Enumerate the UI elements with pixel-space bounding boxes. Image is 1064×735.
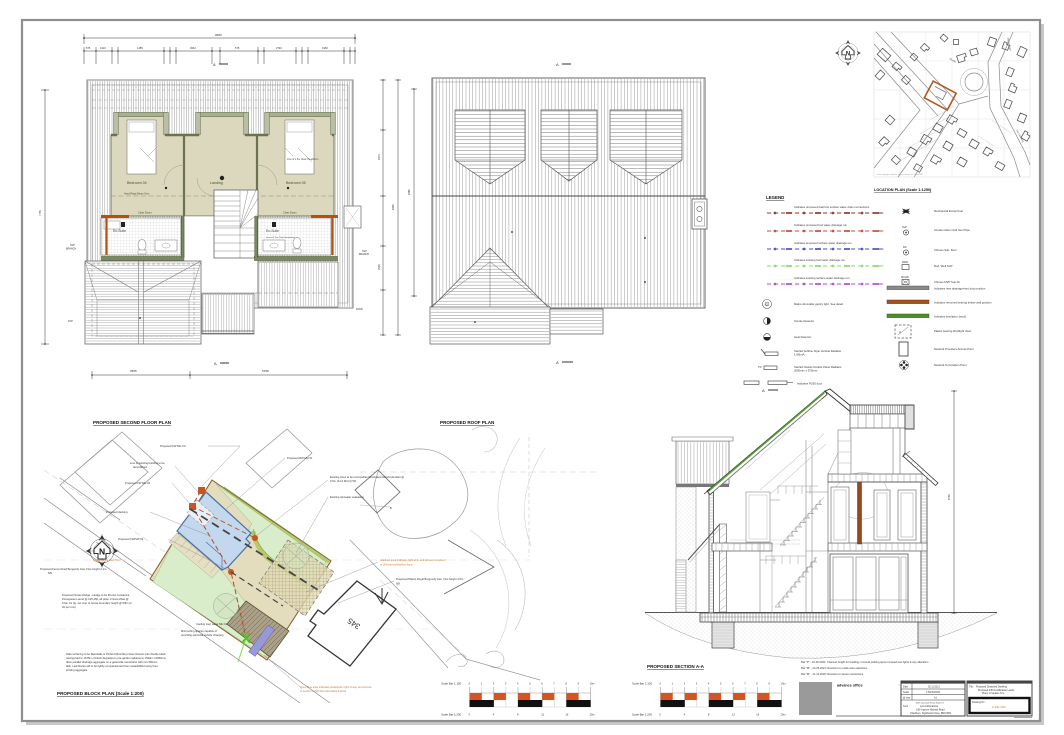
svg-text:of 2M thermal blanket flood: of 2M thermal blanket flood	[380, 563, 413, 567]
svg-text:Proposed Plastic Royal Burgund: Proposed Plastic Royal Burgundy Gas. Fin…	[396, 577, 464, 581]
svg-text:Over Blue area indicates pedes: Over Blue area indicates pedestrian righ…	[300, 685, 372, 689]
svg-text:1.8/6mA: 1.8/6mA	[794, 353, 805, 357]
svg-text:ROOF: ROOF	[356, 308, 363, 311]
svg-text:LOCATION PLAN (Scale 1:1250): LOCATION PLAN (Scale 1:1250)	[874, 188, 932, 192]
svg-text:Indicates removed bearing timb: Indicates removed bearing timber wall po…	[934, 301, 992, 305]
svg-text:1960: 1960	[322, 46, 328, 50]
svg-text:5/8: 5/8	[396, 582, 400, 586]
svg-text:Scale Bar 1:200: Scale Bar 1:200	[632, 713, 652, 717]
svg-text:Landing: Landing	[210, 181, 223, 185]
svg-text:Bedroom 04: Bedroom 04	[127, 181, 147, 185]
svg-text:Hatched area indicates light s: Hatched area indicates light strip and d…	[380, 558, 446, 562]
svg-text:Clear Down: Clear Down	[138, 211, 152, 215]
svg-text:8460: 8460	[391, 204, 395, 210]
svg-text:to section of left thermal wid: to section of left thermal widened flood	[300, 689, 346, 693]
svg-text:Proposed Grass Hedge - Hedge t: Proposed Grass Hedge - Hedge to be Prunu…	[62, 593, 130, 597]
svg-text:N: N	[99, 547, 105, 557]
svg-text:LEGEND: LEGEND	[766, 195, 784, 200]
svg-text:Mechanical Extract Fan: Mechanical Extract Fan	[934, 209, 964, 213]
svg-text:Date: Date	[903, 686, 909, 689]
svg-text:Indicates proposed foul water: Indicates proposed foul water drainage r…	[794, 223, 847, 227]
svg-text:Existing rainwater soakaway: Existing rainwater soakaway	[330, 495, 365, 499]
svg-text:1916: 1916	[100, 46, 106, 50]
svg-text:advance office: advance office	[837, 684, 863, 688]
svg-text:TR: TR	[758, 365, 762, 369]
svg-text:Dark surfacing to be Marshalls: Dark surfacing to be Marshalls or Pinfur…	[66, 652, 166, 656]
svg-text:Indicates FD30 door: Indicates FD30 door	[797, 382, 822, 386]
svg-text:32 per row): 32 per row)	[62, 605, 76, 609]
svg-text:Ref "M" - 21.12.2020: Revision: Ref "M" - 21.12.2020: Revision to Green …	[801, 672, 864, 676]
svg-text:SvP: SvP	[902, 225, 907, 229]
svg-text:PROPOSED SECOND FLOOR PLAN: PROPOSED SECOND FLOOR PLAN	[93, 420, 172, 425]
svg-text:A: A	[556, 360, 559, 365]
svg-text:Indicates existing surface wat: Indicates existing surface water drainag…	[794, 276, 850, 280]
svg-text:RWG: RWG	[902, 260, 908, 264]
svg-text:A: A	[762, 388, 765, 393]
svg-text:Mains dimmable gantry light. S: Mains dimmable gantry light. See detail.	[794, 302, 844, 306]
svg-text:Proposed FW/SW 03: Proposed FW/SW 03	[118, 537, 144, 541]
svg-text:Proposed FW MH 02: Proposed FW MH 02	[125, 481, 151, 485]
svg-text:Indicates insulation (wool): Indicates insulation (wool)	[934, 315, 966, 319]
svg-text:5/8: 5/8	[48, 571, 52, 575]
svg-text:0.6m c/s (2), set over to hous: 0.6m c/s (2), set over to house boundary…	[62, 601, 132, 605]
svg-text:Head Ridge Beam Over: Head Ridge Beam Over	[124, 193, 150, 196]
svg-text:MVHR: MVHR	[901, 275, 909, 279]
svg-text:Scale Bar 1:200: Scale Bar 1:200	[441, 713, 461, 717]
svg-text:Ref "M" - 24.05.2021: Revision: Ref "M" - 24.05.2021: Revision to onsite…	[801, 666, 868, 670]
svg-text:8790: 8790	[947, 494, 951, 500]
svg-text:575: 575	[86, 46, 91, 50]
svg-text:Title: Title	[969, 686, 974, 689]
svg-text:PROPOSED BLOCK PLAN (Scale 1:2: PROPOSED BLOCK PLAN (Scale 1:200)	[57, 691, 144, 696]
svg-text:N: N	[846, 52, 850, 58]
svg-text:A: A	[213, 62, 216, 67]
svg-text:Clear Down: Clear Down	[283, 211, 297, 215]
svg-text:drive parallel drainage aggre: drive parallel drainage aggregate on a g…	[66, 660, 158, 664]
svg-text:A: A	[556, 62, 559, 67]
svg-text:20m: 20m	[781, 713, 786, 717]
svg-text:Indicates proposed dual foul: Indicates proposed dual foul surface wat…	[794, 205, 870, 209]
svg-text:Chimes MVP Sup Air: Chimes MVP Sup Air	[934, 280, 960, 284]
svg-text:PROPOSED SECTION A-A: PROPOSED SECTION A-A	[647, 664, 705, 669]
svg-text:10m: 10m	[590, 682, 595, 686]
svg-text:demolished: demolished	[133, 465, 147, 469]
svg-text:Proposed Fence Road Burgundy G: Proposed Fence Road Burgundy Gas. Fine h…	[40, 567, 107, 571]
svg-text:Indicates proposed surface wat: Indicates proposed surface water drainag…	[794, 241, 852, 245]
svg-text:02.11.2021: 02.11.2021	[928, 686, 940, 689]
svg-text:Proposed decking: Proposed decking	[106, 510, 128, 514]
svg-text:9480: 9480	[407, 189, 411, 195]
svg-text:2-191-003: 2-191-003	[992, 705, 1006, 709]
svg-text:Scale: Scale	[903, 691, 910, 694]
svg-text:paving) laid to 1675m of block: paving) laid to 1675m of block degrades …	[66, 656, 167, 660]
svg-text:2740: 2740	[276, 46, 282, 50]
svg-text:Intruder Alarm And Vent Pipe: Intruder Alarm And Vent Pipe	[934, 228, 970, 232]
svg-text:Line of 1.5m Clear Headroom: Line of 1.5m Clear Headroom	[266, 236, 295, 239]
svg-text:Network Termination Point: Network Termination Point	[934, 363, 967, 367]
svg-text:Drawing No: Drawing No	[972, 701, 985, 704]
svg-text:@ size: @ size	[903, 697, 911, 700]
svg-text:Rod. Well SVP: Rod. Well SVP	[934, 264, 953, 268]
svg-text:2000mm x 570mm: 2000mm x 570mm	[794, 369, 818, 373]
svg-text:jointing aggregate: jointing aggregate	[65, 668, 88, 672]
svg-text:3642: 3642	[190, 46, 196, 50]
svg-text:Plastic bearing Rooflight Viso: Plastic bearing Rooflight Visor	[934, 329, 971, 333]
svg-text:9680: 9680	[215, 33, 222, 37]
svg-text:Proposed RW MH 01: Proposed RW MH 01	[287, 456, 313, 460]
svg-text:20m: 20m	[590, 713, 595, 717]
svg-text:Smoke Detector: Smoke Detector	[794, 319, 814, 323]
svg-text:Line of existing building to b: Line of existing building to be	[130, 461, 165, 465]
svg-text:1485: 1485	[137, 46, 143, 50]
svg-text:PROPOSED ROOF PLAN: PROPOSED ROOF PLAN	[440, 420, 495, 425]
svg-text:SVP: SVP	[68, 320, 73, 323]
svg-text:575: 575	[235, 46, 240, 50]
svg-text:Tech: Tech	[903, 705, 909, 708]
svg-text:Portuguese Laurel @ 125-150, a: Portuguese Laurel @ 125-150, all plots. …	[62, 597, 129, 601]
svg-text:Plans, A Studies S.A.: Plans, A Studies S.A.	[982, 692, 1005, 695]
svg-text:RA: RA	[903, 245, 907, 249]
svg-text:3565: 3565	[130, 369, 137, 373]
svg-text:Network Providers Access Point: Network Providers Access Point	[934, 347, 974, 351]
svg-text:BRANCH: BRANCH	[359, 253, 369, 256]
svg-text:providing electrical vehicle c: providing electrical vehicle charging	[181, 633, 224, 637]
svg-text:falls. Laid blocks will to be: falls. Laid blocks will to be lightly co…	[66, 664, 158, 668]
svg-text:Scale Bar 1:100: Scale Bar 1:100	[632, 682, 652, 686]
svg-text:A: A	[214, 361, 217, 366]
svg-text:Scale Bar 1:100: Scale Bar 1:100	[441, 682, 461, 686]
svg-text:Cooling tray/ water MH 01: Cooling tray/ water MH 01	[196, 622, 228, 626]
svg-text:Line of 1.5m Clear Headroom: Line of 1.5m Clear Headroom	[287, 158, 318, 161]
svg-text:Chadburn, Significant Close,: Chadburn, Significant Close, BN9 9RN	[910, 712, 951, 715]
svg-text:En-Suite: En-Suite	[113, 229, 126, 233]
svg-text:Indicates existing foul water: Indicates existing foul water drainage r…	[794, 258, 845, 262]
svg-text:En-Suite: En-Suite	[266, 229, 279, 233]
svg-text:Heat Detector: Heat Detector	[794, 335, 811, 339]
svg-text:1:50/100/200: 1:50/100/200	[926, 691, 941, 694]
svg-text:7755: 7755	[38, 210, 42, 216]
svg-text:Mid-roofing spaces capable of: Mid-roofing spaces capable of	[181, 629, 217, 633]
svg-text:10m: 10m	[781, 682, 786, 686]
svg-text:BRANCH: BRANCH	[66, 248, 76, 251]
svg-text:Bedroom 05: Bedroom 05	[286, 181, 306, 185]
svg-text:0.5m (S.12 M4 (2) 5b): 0.5m (S.12 M4 (2) 5b)	[330, 479, 356, 483]
svg-text:Indicates new drainage/vent du: Indicates new drainage/vent duct positio…	[934, 287, 986, 291]
svg-text:2900: 2900	[377, 264, 381, 270]
svg-text:Existing trees to be removed/a: Existing trees to be removed/as Nominate…	[330, 475, 404, 479]
svg-text:Chimes Sub. Duct: Chimes Sub. Duct	[934, 248, 957, 252]
svg-text:Garden area over 70m²: Garden area over 70m²	[93, 558, 121, 562]
svg-text:Crown copyright Ordnance Surve: Crown copyright Ordnance Survey. Licence…	[876, 173, 923, 176]
svg-text:5158: 5158	[262, 369, 269, 373]
svg-text:Proposed FW MH CA: Proposed FW MH CA	[160, 444, 186, 448]
svg-text:Ref "P" - 10.08.2021: Channel: Ref "P" - 10.08.2021: Channel height for…	[801, 660, 929, 664]
svg-text:4375: 4375	[377, 154, 381, 160]
svg-text:B: B	[390, 506, 392, 510]
